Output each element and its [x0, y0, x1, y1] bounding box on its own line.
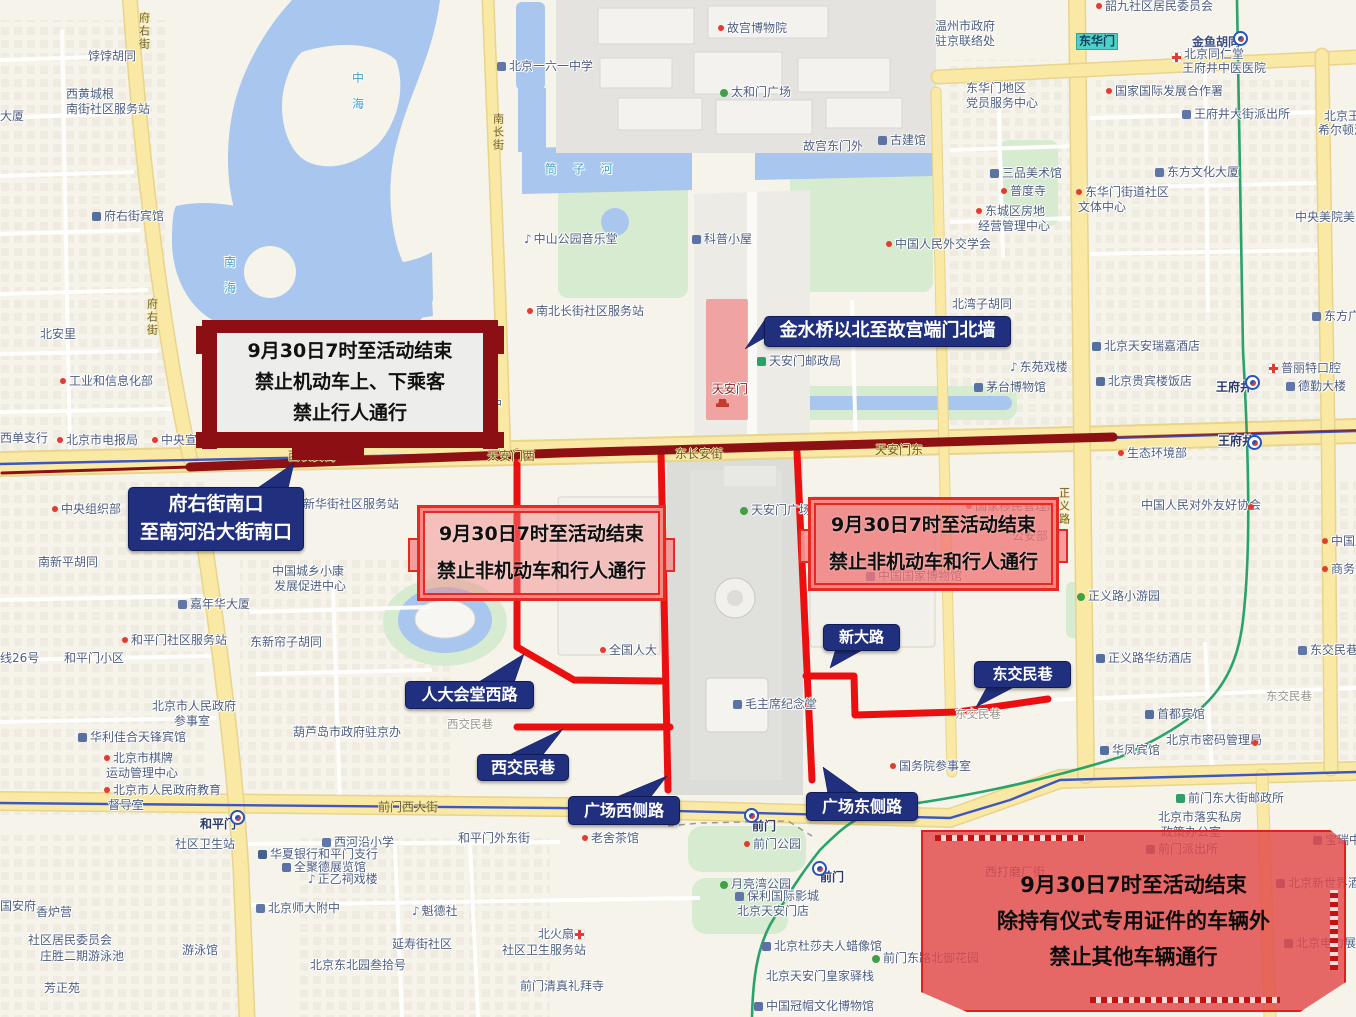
- map-label: [1252, 737, 1261, 750]
- map-label: 发展促进中心: [274, 580, 346, 593]
- map-label: 北湾子胡同: [952, 298, 1012, 311]
- post-icon: [1176, 794, 1185, 803]
- map-label: 东交民巷小学: [1298, 644, 1356, 657]
- map-label: 天安门广场: [740, 504, 811, 517]
- map-label: 国务院参事室: [890, 760, 971, 773]
- notice-line: 禁止非机动车和行人通行: [420, 553, 663, 590]
- map-label: 运动管理中心: [106, 767, 178, 780]
- dot-icon: [1118, 450, 1124, 456]
- map-label: 庄胜二期游泳池: [40, 950, 124, 963]
- map-label: 华夏银行和平门支行: [258, 848, 378, 861]
- dot-icon: [582, 835, 588, 841]
- map-label: 南新平胡同: [38, 556, 98, 569]
- notice-line: 除持有仪式专用证件的车辆外: [923, 903, 1344, 939]
- hotel-icon: [1145, 710, 1154, 719]
- map-label: 正义路华纺酒店: [1096, 652, 1192, 665]
- map-label: 天安门邮政局: [757, 355, 841, 368]
- dot-icon: [1322, 538, 1328, 544]
- map-label: 希尔顿酒店: [1318, 124, 1356, 137]
- map-label: 和平门外东街: [458, 832, 530, 845]
- map-label: 东方广场: [1312, 310, 1356, 323]
- dot-icon: [1252, 740, 1258, 746]
- banner-frame: [202, 320, 217, 449]
- map-label: 三品美术馆: [990, 167, 1062, 180]
- map-label: 华利佳合天锋宾馆: [78, 731, 186, 744]
- dot-icon: [122, 637, 128, 643]
- map-label: 王府井中医医院: [1182, 62, 1266, 75]
- map-label: 生态环境部: [1118, 447, 1187, 460]
- map-label: 社区卫生服务站: [502, 944, 586, 957]
- map-label: ♪东苑戏楼: [1010, 361, 1068, 374]
- map-label: 府右街: [146, 298, 158, 337]
- map-label: 东华门街道社区: [1076, 186, 1169, 199]
- cr-icon: [1268, 363, 1279, 374]
- map-label: 北京天安门店: [737, 905, 809, 918]
- map-label: 南: [224, 256, 242, 269]
- map-label: 王府井大街派出所: [1182, 108, 1290, 121]
- map-label: 葫芦岛市政府驻京办: [293, 726, 401, 739]
- callout-line: 人大会堂西路: [406, 683, 533, 706]
- dot-icon: [1001, 188, 1007, 194]
- map-label: 普丽特口腔: [1281, 362, 1341, 375]
- map-label: 和平门小区: [64, 652, 124, 665]
- map-label: 东新帘子胡同: [250, 636, 322, 649]
- map-label: 普度寺: [1001, 185, 1046, 198]
- map-label: 保利国际影城: [735, 890, 819, 903]
- notice-box-ornament: [935, 835, 1085, 841]
- tree-icon: [720, 89, 728, 97]
- callout-line: 新大路: [824, 627, 899, 649]
- mus-icon: [762, 942, 771, 951]
- notice-box-ornament: [1330, 890, 1338, 970]
- map-label: 驻京联络处: [935, 35, 995, 48]
- sq-icon: [1155, 168, 1164, 177]
- map-label: 东交民巷: [1266, 690, 1312, 702]
- map-label: 国安府: [0, 900, 36, 913]
- dot-icon: [886, 241, 892, 247]
- map-label: 故宫东门外: [803, 140, 863, 153]
- map-label: 华凤宾馆: [1100, 744, 1160, 757]
- map-label: 东城区房地: [976, 205, 1045, 218]
- dot-icon: [57, 437, 63, 443]
- map-label: 延寿街社区: [392, 938, 452, 951]
- callout-guangchang-dongcelu: 广场东侧路: [806, 792, 918, 821]
- map-label: 东长安街: [675, 448, 723, 461]
- callout-guangchang-xicelu: 广场西侧路: [568, 796, 680, 825]
- map-label: 北京天安门皇家驿栈: [766, 970, 874, 983]
- dot-icon: [1248, 504, 1254, 510]
- hotel-icon: [1092, 342, 1101, 351]
- map-label: 北京市落实私房: [1158, 811, 1242, 824]
- map-label: 首都宾馆: [1145, 708, 1205, 721]
- dot-icon: [718, 25, 724, 31]
- map-label: 科普小屋: [692, 233, 752, 246]
- map-label: 南北长街社区服务站: [527, 305, 644, 318]
- map-label: 参事室: [174, 715, 210, 728]
- map-label: 全国人大: [600, 644, 657, 657]
- banner-line: 9月30日7时至活动结束: [217, 336, 483, 367]
- map-label: 北京一六一中学: [497, 60, 593, 73]
- map-label: 前门公园: [744, 838, 801, 851]
- map-label: 大厦: [0, 110, 24, 123]
- map-label: 南街社区服务站: [66, 103, 150, 116]
- tree-icon: [872, 955, 880, 963]
- banner-line: 禁止机动车上、下乘客: [217, 367, 483, 398]
- sq-icon: [1298, 646, 1307, 655]
- map-label: 太和门广场: [720, 86, 791, 99]
- map-label: 游泳馆: [182, 944, 218, 957]
- map-label: 东华门地区: [966, 82, 1026, 95]
- map-label: 古建馆: [878, 134, 926, 147]
- highlighted-station-label: 东华门: [1076, 33, 1118, 50]
- dot-icon: [890, 763, 896, 769]
- map-label: 西交民巷: [447, 718, 493, 730]
- map-label: 北京贵宾楼饭店: [1096, 375, 1192, 388]
- map-label: 党员服务中心: [966, 97, 1038, 110]
- map-label: [574, 929, 588, 942]
- map-label: 商务部: [1322, 563, 1356, 576]
- mus-icon: [990, 169, 999, 178]
- dot-icon: [1096, 3, 1102, 9]
- mus-icon: [692, 235, 701, 244]
- map-label: 海: [224, 282, 242, 295]
- map-label: 西河沿小学: [322, 836, 394, 849]
- map-label: [1248, 501, 1257, 514]
- map-label: 前门清真礼拜寺: [520, 980, 604, 993]
- dot-icon: [1076, 189, 1082, 195]
- map-label: 茅台博物馆: [974, 381, 1046, 394]
- post-icon: [757, 357, 766, 366]
- map-label: 工业和信息化部: [60, 375, 153, 388]
- sq-icon: [1312, 312, 1321, 321]
- map-label: 中国人民外交学会: [886, 238, 991, 251]
- map-label: 中: [352, 72, 370, 85]
- map-label: 文体中心: [1078, 201, 1126, 214]
- map-label: 新华街社区服务站: [303, 498, 399, 511]
- bank-icon: [258, 850, 267, 859]
- map-label: 海: [352, 98, 370, 111]
- hotel-icon: [1096, 654, 1105, 663]
- callout-xijiaominxiang: 西交民巷: [477, 754, 569, 781]
- sq-icon: [1286, 382, 1295, 391]
- callout-line: 府右街南口: [129, 491, 303, 519]
- banner-ornament: [497, 326, 504, 354]
- map-label: 中国城乡小康: [272, 565, 344, 578]
- map-label: 中央组织部: [52, 503, 121, 516]
- callout-line: 广场西侧路: [569, 799, 679, 822]
- map-label: 北京东北园叁拾号: [310, 959, 406, 972]
- map-label: 韶九社区居民委员会: [1096, 0, 1213, 13]
- map-label: 中国人民对外友好协会: [1141, 499, 1261, 512]
- map-label: 东交民巷: [955, 708, 1001, 720]
- dot-icon: [1106, 88, 1112, 94]
- notice-line: 禁止非机动车和行人通行: [811, 544, 1056, 581]
- map-label: 北京市棋牌: [104, 752, 173, 765]
- callout-fuyoujie-section: 府右街南口至南河沿大街南口: [128, 487, 304, 551]
- map-label: 天安门: [712, 383, 748, 396]
- map-label: 北安里: [40, 328, 76, 341]
- subway-station-icon: [1233, 31, 1248, 46]
- map-label: 东方文化大厦: [1155, 166, 1239, 179]
- dot-icon: [744, 841, 750, 847]
- music-icon: ♪: [412, 904, 420, 918]
- map-label: [1268, 363, 1282, 376]
- banner-text-panel: 9月30日7时至活动结束 禁止机动车上、下乘客 禁止行人通行: [217, 333, 483, 432]
- map-label: 北火扇: [538, 928, 574, 941]
- map-label: 中国质检: [1322, 535, 1356, 548]
- gate-icon: [716, 399, 729, 407]
- subway-station-icon: [1247, 435, 1262, 450]
- map-label: ♪正乙祠戏楼: [308, 873, 378, 886]
- callout-rendahuitang-xilu: 人大会堂西路: [405, 681, 534, 709]
- map-label: 中央美院美术馆: [1295, 211, 1356, 224]
- map-label: 天安门东: [875, 444, 923, 457]
- map-label: 北京师大附中: [256, 902, 340, 915]
- tree-icon: [720, 881, 728, 889]
- map-label: 北京同仁堂: [1184, 48, 1244, 61]
- callout-dongjiaominxiang: 东交民巷: [974, 661, 1071, 688]
- map-label: 正义路: [1058, 487, 1070, 526]
- map-label: 北京市人民政府教育: [104, 784, 221, 797]
- banner-frame: [202, 320, 498, 333]
- map-label: 前门西大街: [378, 801, 438, 814]
- dot-icon: [52, 506, 58, 512]
- mus-icon: [974, 383, 983, 392]
- banner-line: 禁止行人通行: [217, 398, 483, 429]
- map-label: 社区卫生站: [175, 838, 235, 851]
- map-label: 西黄城根: [66, 88, 114, 101]
- map-label: 德勤大楼: [1286, 380, 1346, 393]
- mus-icon: [754, 1002, 763, 1011]
- map-label: 督导室: [108, 799, 144, 812]
- map-label: 饽饽胡同: [88, 50, 136, 63]
- map-label: 府右街宾馆: [92, 210, 164, 223]
- music-icon: ♪: [524, 232, 532, 246]
- map-label: 线26号: [0, 652, 39, 665]
- dot-icon: [600, 647, 606, 653]
- callout-line: 广场东侧路: [807, 795, 917, 818]
- callout-line: 西交民巷: [478, 756, 568, 779]
- map-label: 北京杜莎夫人蜡像馆: [762, 940, 882, 953]
- map-label: 老舍茶馆: [582, 832, 639, 845]
- callout-line: 东交民巷: [975, 664, 1070, 686]
- dot-icon: [104, 755, 110, 761]
- hotel-icon: [92, 212, 101, 221]
- banner-frame: [483, 320, 498, 449]
- notice-line: 9月30日7时至活动结束: [923, 867, 1344, 903]
- traffic-restriction-map: 饽饽胡同西黄城根南街社区服务站大厦府右街宾馆北安里工业和信息化部西单支行北京市电…: [0, 0, 1356, 1017]
- map-label: 南长街: [492, 113, 504, 152]
- sq-icon: [735, 892, 744, 901]
- subway-station-icon: [744, 808, 759, 823]
- subway-station-icon: [812, 861, 827, 876]
- dot-icon: [104, 787, 110, 793]
- callout-jinshuiqiao-section: 金水桥以北至故宫端门北墙: [764, 316, 1011, 347]
- map-label: 社区居民委员会: [28, 934, 112, 947]
- map-label: 嘉年华大厦: [178, 598, 250, 611]
- mus-icon: [282, 863, 291, 872]
- map-label: 前门东大街邮政所: [1176, 792, 1284, 805]
- map-label: 芳正苑: [44, 982, 80, 995]
- notice-line: 禁止其他车辆通行: [923, 939, 1344, 975]
- map-label: 筒 子 河: [545, 163, 619, 176]
- notice-box-qianmen-area: 9月30日7时至活动结束 除持有仪式专用证件的车辆外 禁止其他车辆通行: [921, 830, 1346, 1012]
- map-label: ♪中山公园音乐堂: [524, 233, 618, 246]
- tree-icon: [740, 507, 748, 515]
- dot-icon: [152, 437, 158, 443]
- notice-line: 9月30日7时至活动结束: [420, 516, 663, 553]
- subway-station-icon: [1245, 375, 1260, 390]
- map-label: 北京天安瑞嘉酒店: [1092, 340, 1200, 353]
- sq-icon: [1182, 110, 1191, 119]
- map-label: 正义路小游园: [1077, 590, 1160, 603]
- map-label: 北京王府: [1324, 110, 1356, 123]
- map-label: 和平门社区服务站: [122, 634, 227, 647]
- mus-icon: [878, 136, 887, 145]
- map-label: 西单支行: [0, 432, 48, 445]
- banner-frame: [292, 446, 364, 460]
- map-label: 香炉营: [36, 906, 72, 919]
- banner-notice-changan: 9月30日7时至活动结束 禁止机动车上、下乘客 禁止行人通行: [196, 318, 504, 460]
- map-label: 经营管理中心: [978, 220, 1050, 233]
- cr-icon: [574, 929, 585, 940]
- dot-icon: [1322, 566, 1328, 572]
- sq-icon: [497, 62, 506, 71]
- hotel-icon: [1100, 746, 1109, 755]
- map-label: 温州市政府: [935, 20, 995, 33]
- callout-line: 金水桥以北至故宫端门北墙: [765, 318, 1010, 344]
- map-label: 北京市电报局: [57, 434, 138, 447]
- map-label: [716, 396, 732, 409]
- notice-box-ornament: [1090, 997, 1280, 1003]
- map-label: 中国冠帽文化博物馆: [754, 1000, 874, 1013]
- hotel-icon: [78, 733, 87, 742]
- music-icon: ♪: [1010, 360, 1018, 374]
- hotel-icon: [1096, 377, 1105, 386]
- sq-icon: [178, 600, 187, 609]
- map-label: 故宫博物院: [718, 22, 787, 35]
- subway-station-icon: [230, 810, 245, 825]
- dot-icon: [60, 378, 66, 384]
- callout-xindalu: 新大路: [823, 624, 900, 651]
- dot-icon: [527, 308, 533, 314]
- map-label: 北京市人民政府: [152, 700, 236, 713]
- map-label: 前门: [752, 820, 776, 833]
- map-label: 府右街: [138, 12, 150, 51]
- cr-icon: [1171, 52, 1182, 63]
- map-label: 国家国际发展合作署: [1106, 85, 1223, 98]
- notice-box-east-side-road: 9月30日7时至活动结束 禁止非机动车和行人通行: [808, 497, 1059, 591]
- map-label: 毛主席纪念堂: [733, 698, 817, 711]
- music-icon: ♪: [308, 872, 316, 886]
- notice-line: 9月30日7时至活动结束: [811, 507, 1056, 544]
- dot-icon: [976, 208, 982, 214]
- sq-icon: [322, 838, 331, 847]
- callout-line: 至南河沿大街南口: [129, 519, 303, 547]
- tree-icon: [1077, 593, 1085, 601]
- mus-icon: [733, 700, 742, 709]
- map-label: 北京市密码管理局: [1166, 734, 1262, 747]
- sq-icon: [256, 904, 265, 913]
- notice-box-west-side-road: 9月30日7时至活动结束 禁止非机动车和行人通行: [417, 505, 666, 601]
- map-label: ♪魁德社: [412, 905, 458, 918]
